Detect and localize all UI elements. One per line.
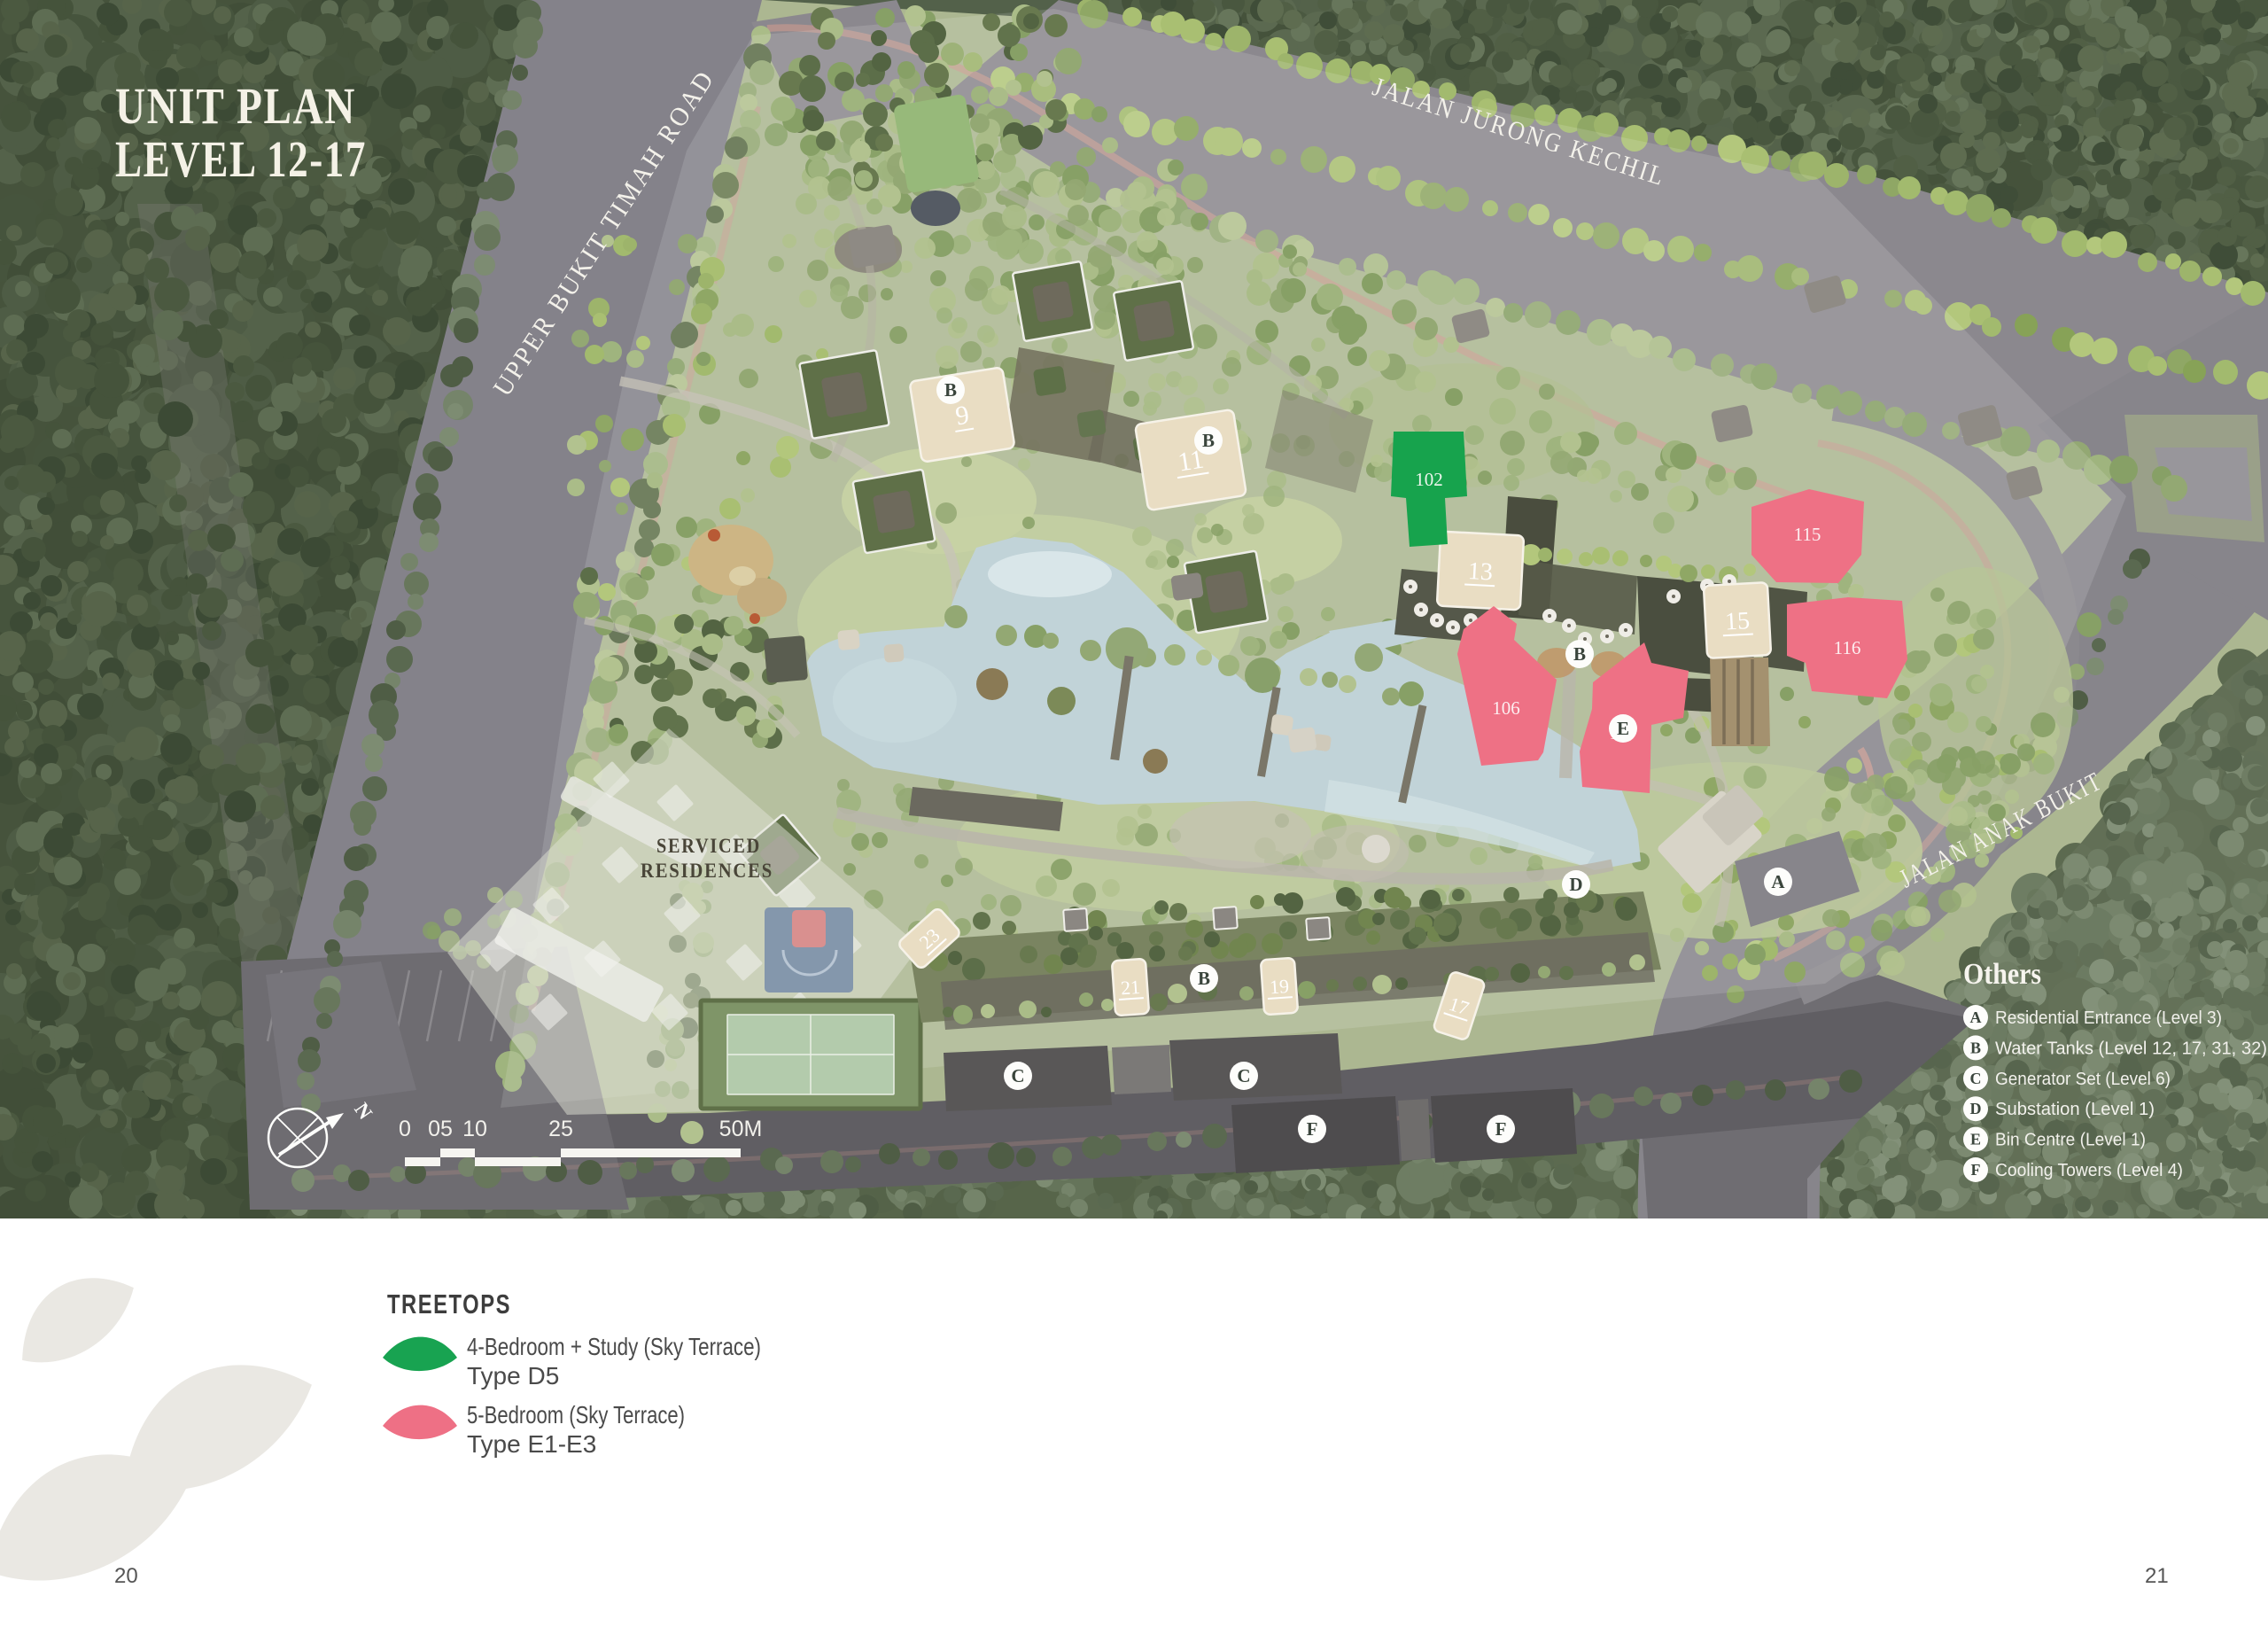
svg-text:SERVICED: SERVICED xyxy=(656,835,761,857)
svg-text:RESIDENCES: RESIDENCES xyxy=(641,860,773,882)
